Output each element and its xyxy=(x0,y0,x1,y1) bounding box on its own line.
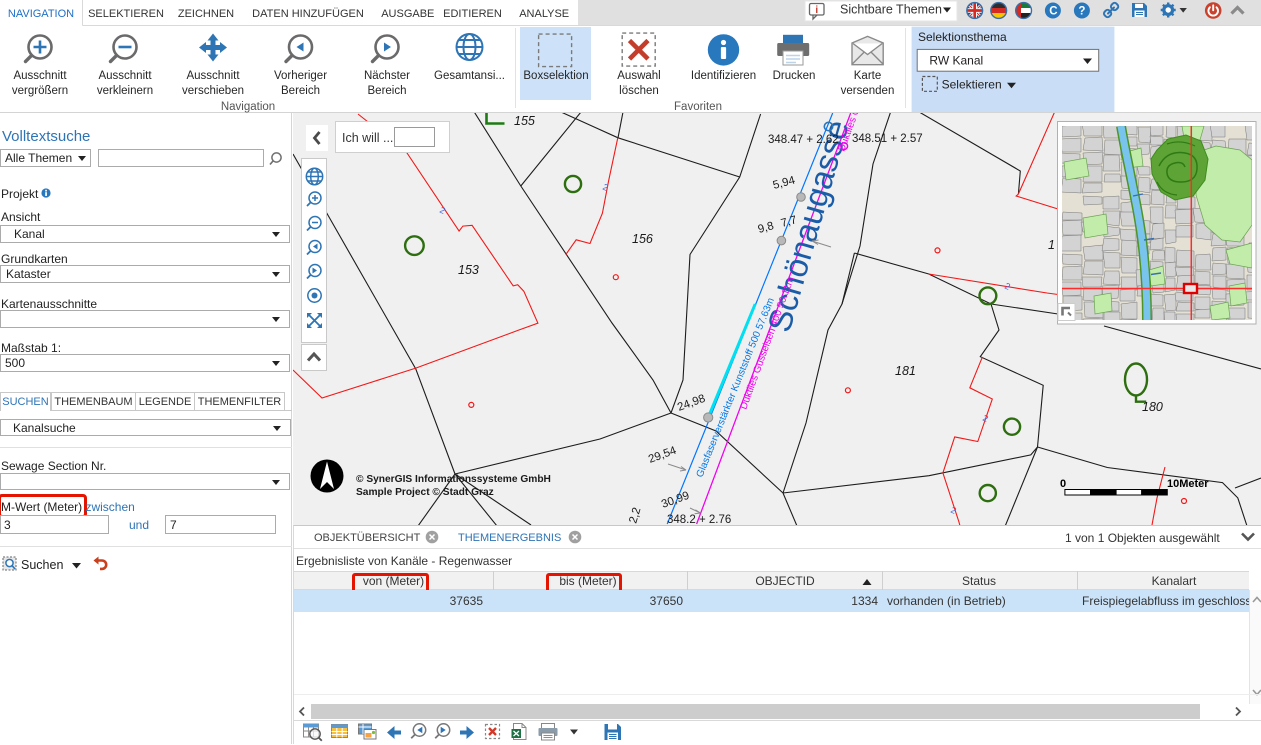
svg-text:AUSGABE: AUSGABE xyxy=(381,8,434,20)
svg-text:155: 155 xyxy=(514,114,535,128)
svg-text:156: 156 xyxy=(632,232,653,246)
svg-text:verschieben: verschieben xyxy=(182,85,244,97)
svg-text:0: 0 xyxy=(1060,478,1066,490)
svg-text:Identifizieren: Identifizieren xyxy=(691,70,756,82)
svg-text:Ausschnitt: Ausschnitt xyxy=(13,70,67,82)
svg-text:Auswahl: Auswahl xyxy=(617,70,660,82)
svg-text:löschen: löschen xyxy=(619,85,659,97)
svg-text:181: 181 xyxy=(895,364,916,378)
svg-text:Bereich: Bereich xyxy=(281,85,320,97)
svg-text:Sample Project © Stadt Graz: Sample Project © Stadt Graz xyxy=(356,487,494,498)
svg-text:Sichtbare Themen: Sichtbare Themen xyxy=(840,3,942,17)
svg-text:C: C xyxy=(1049,6,1057,18)
svg-text:348.47 + 2.62: 348.47 + 2.62 xyxy=(768,134,839,146)
svg-text:EDITIEREN: EDITIEREN xyxy=(443,8,502,20)
svg-text:vergrößern: vergrößern xyxy=(12,85,68,97)
svg-text:Ausschnitt: Ausschnitt xyxy=(186,70,240,82)
svg-text:348.51 + 2.57: 348.51 + 2.57 xyxy=(852,133,923,145)
svg-text:NAVIGATION: NAVIGATION xyxy=(8,8,74,20)
svg-text:Favoriten: Favoriten xyxy=(674,101,722,113)
svg-text:Boxselektion: Boxselektion xyxy=(523,70,588,82)
svg-text:348.2 + 2.76: 348.2 + 2.76 xyxy=(667,514,731,525)
svg-text:1: 1 xyxy=(1048,238,1055,252)
svg-text:Karte: Karte xyxy=(854,70,882,82)
svg-text:?: ? xyxy=(1078,6,1085,18)
svg-text:ZEICHNEN: ZEICHNEN xyxy=(178,8,234,20)
svg-text:153: 153 xyxy=(458,263,479,277)
svg-text:180: 180 xyxy=(1142,400,1163,414)
svg-text:© SynerGIS Informationssysteme: © SynerGIS Informationssysteme GmbH xyxy=(356,474,551,485)
svg-text:Navigation: Navigation xyxy=(221,101,275,113)
svg-text:10Meter: 10Meter xyxy=(1167,478,1209,490)
svg-text:Nächster: Nächster xyxy=(364,70,410,82)
svg-text:SELEKTIEREN: SELEKTIEREN xyxy=(88,8,164,20)
svg-text:Gesamtansi...: Gesamtansi... xyxy=(434,70,505,82)
svg-text:ANALYSE: ANALYSE xyxy=(519,8,569,20)
svg-text:Drucken: Drucken xyxy=(773,70,816,82)
svg-text:i: i xyxy=(815,5,818,16)
svg-text:Selektionsthema: Selektionsthema xyxy=(918,30,1007,44)
svg-text:Ausschnitt: Ausschnitt xyxy=(98,70,152,82)
svg-text:versenden: versenden xyxy=(841,85,895,97)
svg-text:Vorheriger: Vorheriger xyxy=(274,70,327,82)
svg-text:DATEN HINZUFÜGEN: DATEN HINZUFÜGEN xyxy=(252,8,364,20)
svg-text:Selektieren: Selektieren xyxy=(942,78,1002,92)
svg-text:RW Kanal: RW Kanal xyxy=(929,54,983,68)
svg-text:verkleinern: verkleinern xyxy=(97,85,153,97)
svg-text:Bereich: Bereich xyxy=(368,85,407,97)
